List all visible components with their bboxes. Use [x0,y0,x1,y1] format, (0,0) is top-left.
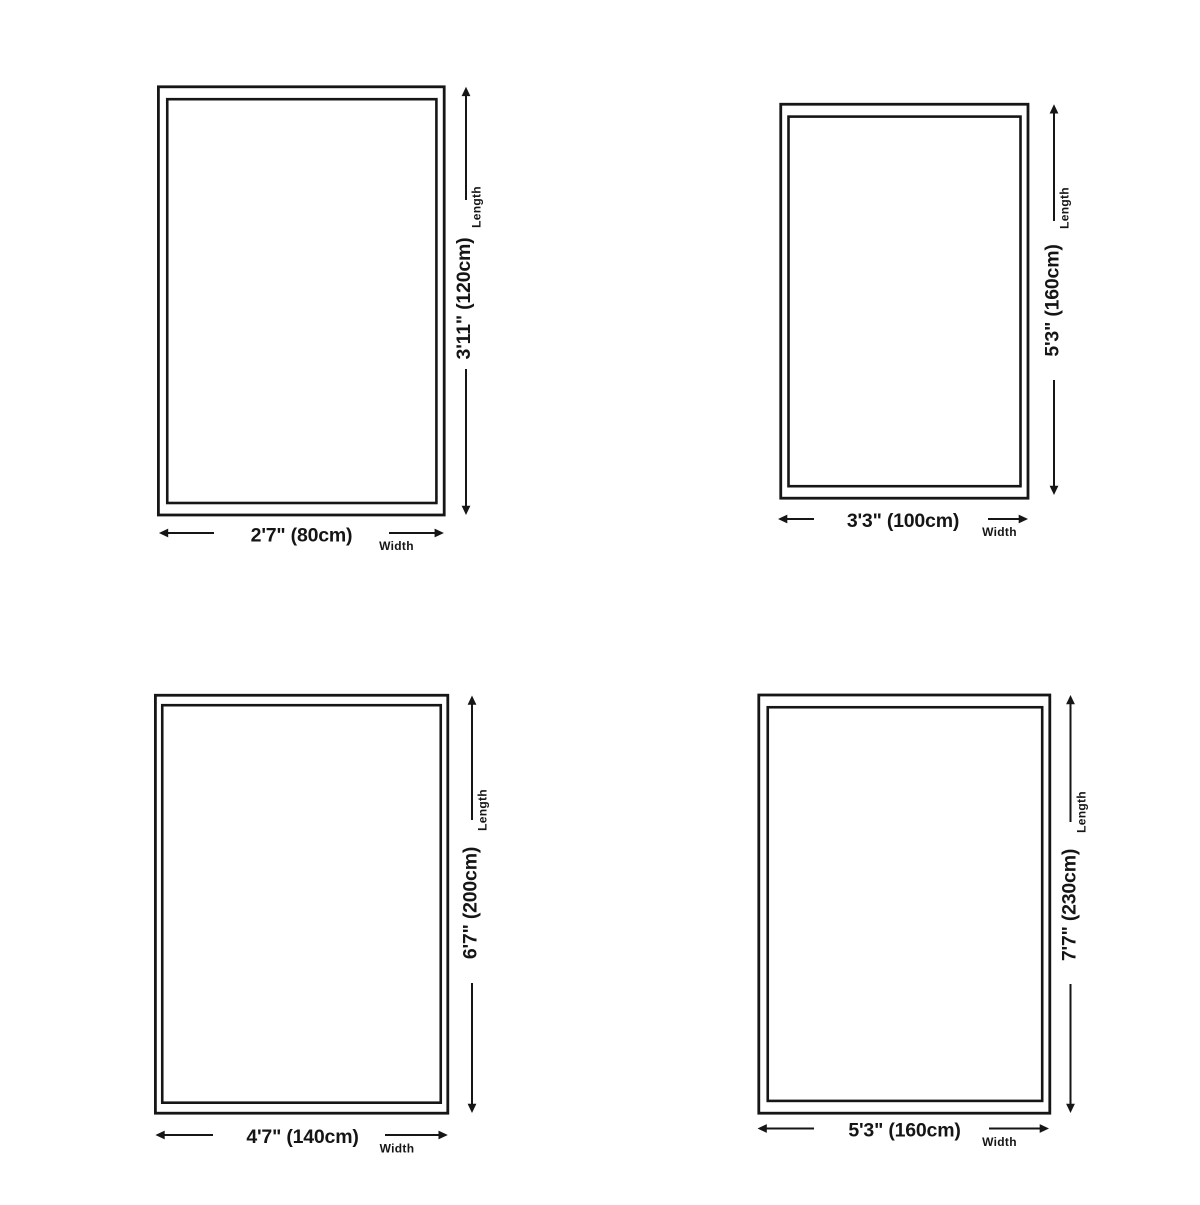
svg-text:7'7" (230cm): 7'7" (230cm) [1059,849,1081,961]
svg-text:4'7" (140cm): 4'7" (140cm) [246,1126,358,1148]
svg-text:5'3" (160cm): 5'3" (160cm) [1042,244,1064,356]
svg-text:5'3" (160cm): 5'3" (160cm) [848,1120,960,1142]
svg-text:Width: Width [380,1142,415,1156]
svg-text:Width: Width [982,525,1017,539]
svg-text:3'3" (100cm): 3'3" (100cm) [847,510,959,532]
svg-text:3'11" (120cm): 3'11" (120cm) [453,238,475,360]
svg-text:Length: Length [470,186,484,228]
svg-text:Length: Length [1058,187,1072,229]
svg-text:Width: Width [982,1135,1017,1149]
svg-text:6'7" (200cm): 6'7" (200cm) [460,847,482,959]
svg-text:Length: Length [1075,791,1089,833]
svg-text:Length: Length [476,789,490,831]
svg-text:Width: Width [379,539,414,553]
svg-text:2'7" (80cm): 2'7" (80cm) [251,525,353,547]
